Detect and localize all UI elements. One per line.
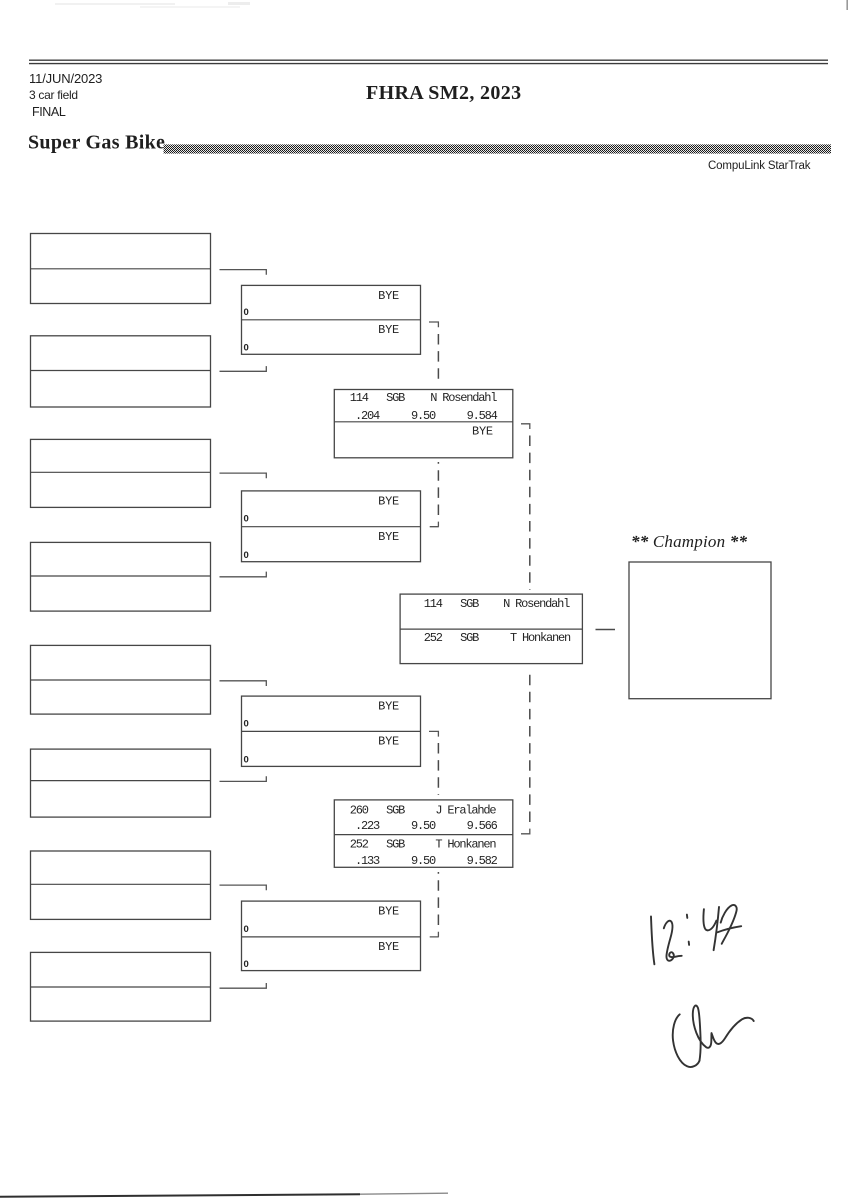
svg-text:9.50: 9.50 xyxy=(411,819,436,833)
svg-text:9.566: 9.566 xyxy=(467,819,498,833)
svg-text:9.50: 9.50 xyxy=(411,409,436,423)
svg-text:260: 260 xyxy=(350,803,369,817)
svg-text:T Honkanen: T Honkanen xyxy=(510,631,571,645)
svg-text:SGB: SGB xyxy=(386,391,405,405)
svg-text:CompuLink StarTrak: CompuLink StarTrak xyxy=(708,160,811,172)
svg-text:** Champion **: ** Champion ** xyxy=(631,532,747,551)
svg-text:0: 0 xyxy=(244,550,249,561)
svg-text:BYE: BYE xyxy=(378,735,399,749)
svg-text:FINAL: FINAL xyxy=(32,105,66,119)
svg-text:252: 252 xyxy=(424,631,443,645)
svg-text:114: 114 xyxy=(424,597,443,611)
svg-text:FHRA SM2, 2023: FHRA SM2, 2023 xyxy=(366,82,521,104)
svg-text:252: 252 xyxy=(350,838,369,852)
svg-text:J Eralahde: J Eralahde xyxy=(435,803,496,817)
svg-text:11/JUN/2023: 11/JUN/2023 xyxy=(29,71,102,86)
svg-text:SGB: SGB xyxy=(460,631,479,645)
svg-text:0: 0 xyxy=(244,924,249,935)
svg-text:0: 0 xyxy=(244,959,249,970)
svg-text:0: 0 xyxy=(244,718,249,729)
svg-text:3 car field: 3 car field xyxy=(29,88,78,102)
svg-text:BYE: BYE xyxy=(378,700,399,714)
svg-text:Super Gas Bike: Super Gas Bike xyxy=(28,131,165,153)
svg-text:9.582: 9.582 xyxy=(467,854,498,868)
svg-text:T Honkanen: T Honkanen xyxy=(435,838,496,852)
svg-text:N Rosendahl: N Rosendahl xyxy=(430,391,497,405)
svg-text:BYE: BYE xyxy=(378,323,399,337)
svg-text:SGB: SGB xyxy=(386,803,405,817)
svg-text:0: 0 xyxy=(244,343,249,354)
svg-text:SGB: SGB xyxy=(386,838,405,852)
svg-text:9.50: 9.50 xyxy=(411,854,436,868)
svg-text:.133: .133 xyxy=(355,854,380,868)
svg-text:N Rosendahl: N Rosendahl xyxy=(503,597,570,611)
svg-text:BYE: BYE xyxy=(378,940,399,954)
svg-text:0: 0 xyxy=(244,514,249,525)
svg-text:114: 114 xyxy=(350,391,369,405)
svg-text:0: 0 xyxy=(244,755,249,766)
svg-text:BYE: BYE xyxy=(472,425,493,439)
svg-text:SGB: SGB xyxy=(460,597,479,611)
svg-text:9.584: 9.584 xyxy=(467,409,498,423)
svg-text:.223: .223 xyxy=(355,819,380,833)
svg-text:.204: .204 xyxy=(355,409,380,423)
svg-text:BYE: BYE xyxy=(378,289,399,303)
svg-text:BYE: BYE xyxy=(378,494,399,508)
svg-text:BYE: BYE xyxy=(378,530,399,544)
svg-text:BYE: BYE xyxy=(378,905,399,919)
svg-text:0: 0 xyxy=(244,307,249,318)
